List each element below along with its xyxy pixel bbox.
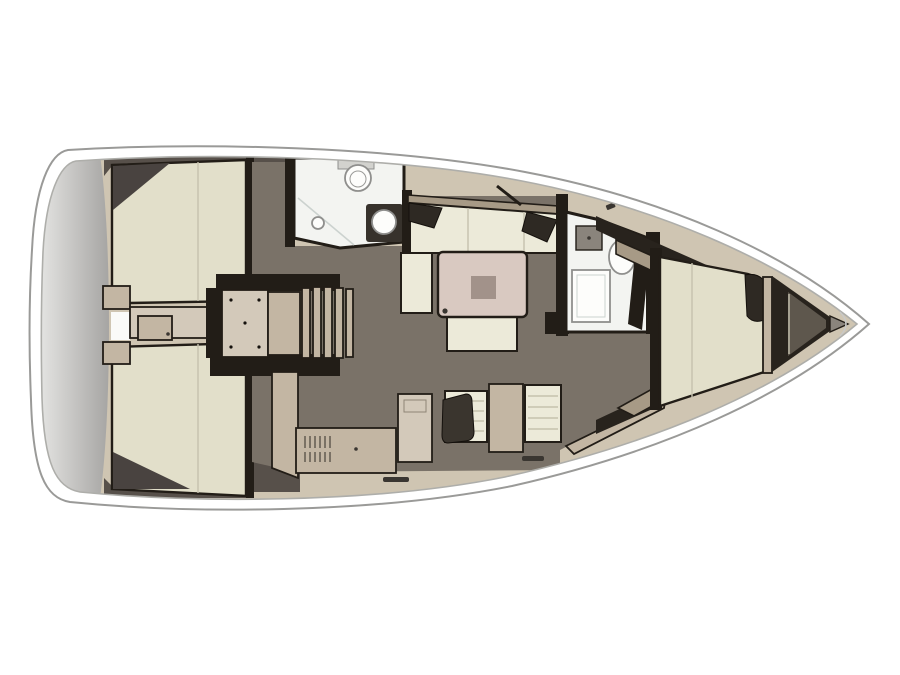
galley-counter-knob: [354, 447, 358, 451]
aft-head-sink: [372, 210, 396, 234]
table-leg: [442, 308, 447, 313]
salon-table-inset: [471, 276, 496, 299]
galley-tall-unit: [398, 394, 432, 462]
galley-mid-cabinet: [489, 384, 523, 452]
galley-vented-counter: [296, 428, 396, 473]
companionway-panel: [268, 292, 300, 355]
boat-floor-plan: [0, 0, 900, 675]
galley-toe-shadow-2: [522, 456, 544, 461]
centre-infill-panel: [138, 316, 172, 340]
salon-bench-bottom: [447, 317, 517, 351]
fwd-head-shower-tray: [572, 270, 610, 322]
fwd-head-cabinet-knob: [587, 236, 591, 240]
galley-left-column: [272, 372, 298, 478]
transom-swim-platform: [40, 150, 109, 502]
galley-stove: [442, 394, 474, 443]
salon-bench-left: [401, 253, 432, 313]
stern-locker-bottom: [103, 342, 130, 364]
stern-white-gap: [111, 312, 130, 340]
infill-latch: [166, 332, 170, 336]
aft-head-shower-drain: [312, 217, 324, 229]
stern-locker-top: [103, 286, 130, 309]
fwd-bulkhead-strip: [763, 277, 772, 373]
galley-toe-shadow-1: [383, 477, 409, 482]
interior: [30, 140, 870, 530]
floor-plan-svg: [0, 0, 900, 675]
galley-fridge-lid: [525, 385, 561, 442]
companionway-steps: [302, 287, 353, 358]
